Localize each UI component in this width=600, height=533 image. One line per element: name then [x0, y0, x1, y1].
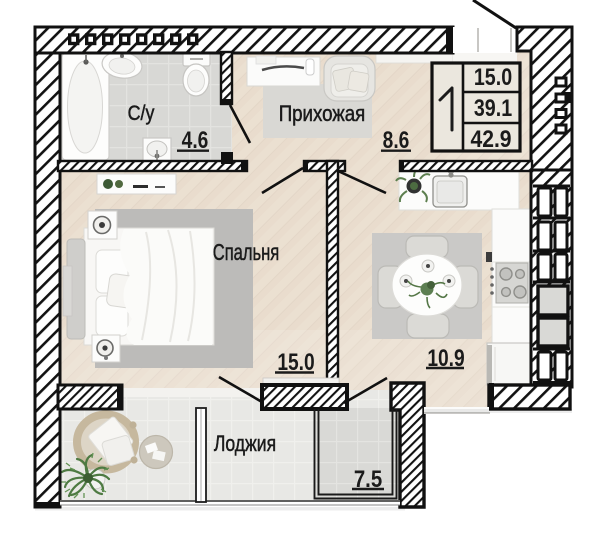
svg-text:39.1: 39.1 [474, 94, 512, 121]
svg-text:Прихожая: Прихожая [279, 103, 366, 127]
svg-text:С/у: С/у [128, 102, 155, 126]
svg-text:4.6: 4.6 [182, 126, 209, 154]
svg-text:8.6: 8.6 [383, 126, 410, 154]
svg-text:Лоджия: Лоджия [214, 432, 276, 456]
svg-text:Спальня: Спальня [213, 240, 280, 265]
svg-text:15.0: 15.0 [474, 63, 512, 90]
svg-text:42.9: 42.9 [470, 126, 511, 153]
